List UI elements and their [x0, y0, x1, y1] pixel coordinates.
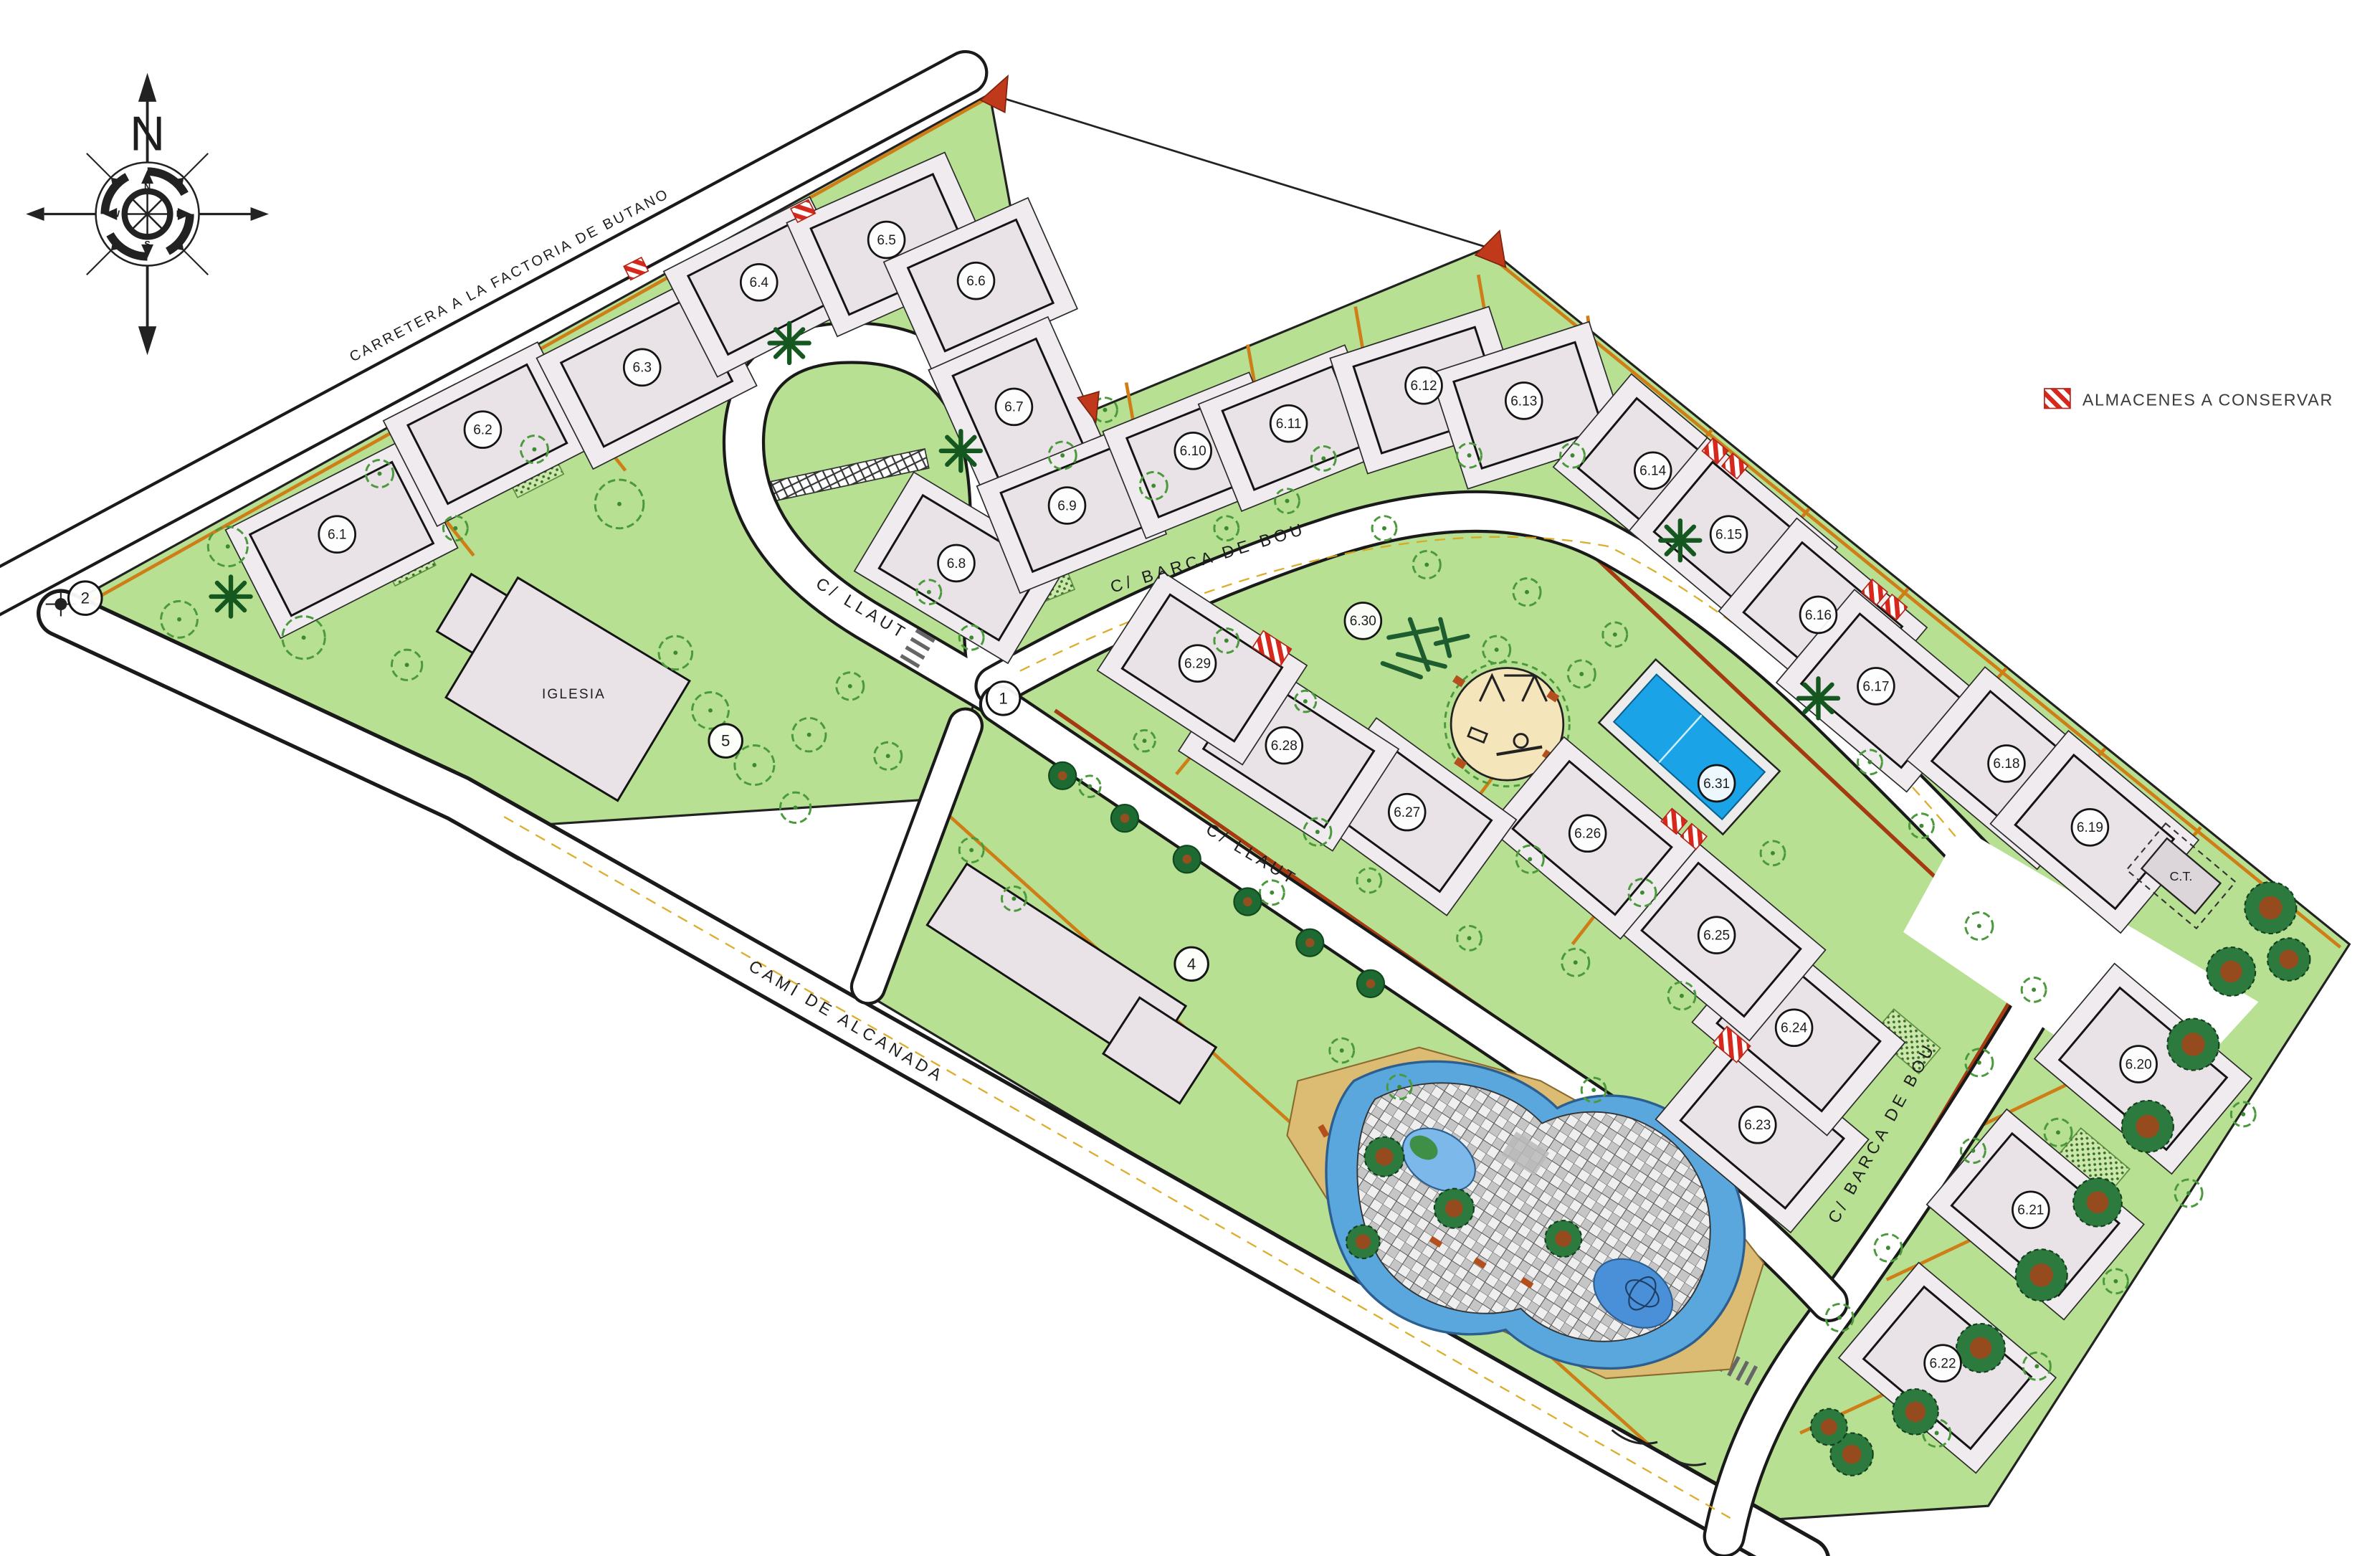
plot-label-6.12: 6.12 [1406, 367, 1442, 404]
svg-text:5: 5 [721, 732, 730, 750]
svg-text:E: E [176, 209, 182, 219]
plot-label-6.3: 6.3 [624, 349, 660, 386]
plot-label-6.13: 6.13 [1505, 383, 1542, 419]
svg-text:6.14: 6.14 [1639, 464, 1666, 479]
svg-text:6.18: 6.18 [1993, 756, 2019, 772]
boundary-tree-icon [1893, 1389, 1938, 1435]
plot-label-6.14: 6.14 [1634, 452, 1671, 489]
svg-text:1: 1 [999, 689, 1007, 707]
boundary-tree-icon [1956, 1324, 2005, 1372]
zone-label-2: 2 [68, 582, 102, 615]
street-tree-icon [1357, 970, 1384, 997]
compass-n-label: N [130, 108, 165, 161]
site-plan: IGLESIA C.T. CARRETERA A LA FACTORIA DE … [0, 0, 2380, 1556]
svg-text:6.22: 6.22 [1930, 1356, 1956, 1371]
plot-label-6.10: 6.10 [1175, 432, 1212, 469]
svg-text:6.2: 6.2 [473, 422, 492, 437]
iglesia-label: IGLESIA [542, 687, 606, 702]
svg-text:6.20: 6.20 [2126, 1057, 2152, 1072]
svg-text:N: N [144, 182, 151, 192]
boundary-tree-icon [1545, 1220, 1581, 1257]
palm-tree-icon [1799, 678, 1838, 718]
plot-label-6.7: 6.7 [996, 389, 1032, 425]
ct-label: C.T. [2169, 869, 2192, 883]
boundary-tree-icon [1346, 1225, 1380, 1258]
svg-text:6.13: 6.13 [1510, 394, 1537, 409]
svg-text:6.31: 6.31 [1703, 777, 1730, 792]
svg-text:6.29: 6.29 [1184, 657, 1211, 672]
svg-text:6.11: 6.11 [1276, 417, 1302, 432]
svg-text:6.26: 6.26 [1574, 827, 1601, 842]
plot-label-6.25: 6.25 [1698, 917, 1735, 954]
svg-text:2: 2 [81, 589, 90, 607]
boundary-tree-icon [2016, 1249, 2067, 1301]
plot-label-6.21: 6.21 [2012, 1192, 2049, 1228]
svg-text:6.4: 6.4 [750, 275, 769, 290]
svg-text:6.21: 6.21 [2017, 1203, 2044, 1218]
street-tree-icon [1049, 762, 1076, 789]
boundary-tree-icon [2122, 1101, 2174, 1152]
svg-text:6.15: 6.15 [1715, 528, 1742, 543]
plot-label-6.11: 6.11 [1270, 405, 1307, 442]
zone-label-5: 5 [709, 724, 743, 758]
svg-text:6.12: 6.12 [1410, 379, 1437, 394]
plot-label-6.31: 6.31 [1698, 765, 1735, 802]
plot-label-6.4: 6.4 [741, 264, 777, 300]
boundary-tree-icon [2245, 882, 2296, 934]
svg-text:6.6: 6.6 [966, 274, 985, 289]
svg-text:6.28: 6.28 [1271, 739, 1298, 754]
plot-label-6.19: 6.19 [2072, 809, 2108, 845]
legend-almacenes-label: ALMACENES A CONSERVAR [2082, 390, 2333, 409]
svg-text:6.10: 6.10 [1180, 444, 1206, 459]
plot-label-6.16: 6.16 [1800, 597, 1837, 633]
plot-label-6.27: 6.27 [1389, 794, 1425, 830]
svg-text:6.25: 6.25 [1703, 928, 1730, 943]
boundary-tree-icon [1434, 1189, 1474, 1228]
boundary-tree-icon [2207, 947, 2255, 996]
plot-label-6.17: 6.17 [1858, 668, 1895, 705]
svg-text:6.7: 6.7 [1004, 400, 1023, 415]
svg-text:4: 4 [1187, 955, 1196, 973]
zone-label-1: 1 [986, 682, 1020, 716]
plot-label-6.30: 6.30 [1345, 602, 1381, 639]
plot-label-6.24: 6.24 [1776, 1010, 1812, 1046]
svg-text:6.17: 6.17 [1862, 679, 1889, 694]
palm-tree-icon [941, 431, 981, 470]
palm-tree-icon [211, 577, 250, 616]
plot-label-6.26: 6.26 [1569, 815, 1606, 852]
svg-text:6.24: 6.24 [1781, 1021, 1807, 1036]
palm-tree-icon [770, 323, 809, 363]
palm-tree-icon [1660, 521, 1700, 560]
plot-label-6.6: 6.6 [958, 262, 994, 299]
svg-text:6.8: 6.8 [947, 556, 966, 571]
street-tree-icon [1111, 805, 1138, 832]
zone-label-4: 4 [1175, 947, 1209, 981]
legend-swatch-almacenes [2045, 389, 2070, 409]
svg-text:6.9: 6.9 [1057, 498, 1076, 513]
boundary-tree-icon [2267, 938, 2310, 980]
plot-label-6.2: 6.2 [465, 412, 501, 448]
svg-text:6.30: 6.30 [1350, 614, 1376, 629]
plot-label-6.28: 6.28 [1266, 727, 1303, 764]
plot-label-6.15: 6.15 [1710, 516, 1747, 553]
plot-label-6.8: 6.8 [938, 545, 975, 582]
svg-text:6.19: 6.19 [2077, 820, 2103, 835]
street-tree-icon [1296, 929, 1323, 957]
plot-label-6.1: 6.1 [319, 516, 356, 553]
boundary-tree-icon [1811, 1409, 1847, 1446]
plot-label-6.23: 6.23 [1739, 1106, 1776, 1143]
street-tree-icon [1234, 888, 1261, 915]
street-tree-icon [1174, 845, 1201, 873]
svg-text:S: S [144, 239, 150, 250]
svg-text:6.1: 6.1 [328, 528, 346, 543]
legend: ALMACENES A CONSERVAR [2045, 389, 2333, 409]
svg-text:W: W [111, 209, 120, 219]
svg-text:6.5: 6.5 [877, 233, 895, 248]
svg-text:6.27: 6.27 [1394, 805, 1420, 820]
svg-text:6.16: 6.16 [1805, 608, 1832, 623]
plot-label-6.5: 6.5 [868, 222, 905, 258]
boundary-tree-icon [2167, 1019, 2219, 1071]
svg-text:6.23: 6.23 [1744, 1118, 1771, 1133]
plot-label-6.18: 6.18 [1989, 745, 2025, 782]
svg-text:6.3: 6.3 [632, 361, 651, 376]
plot-label-6.29: 6.29 [1179, 645, 1216, 682]
boundary-tree-icon [1364, 1137, 1404, 1177]
plot-label-6.22: 6.22 [1925, 1345, 1961, 1382]
plot-label-6.20: 6.20 [2120, 1046, 2157, 1083]
plot-label-6.9: 6.9 [1049, 488, 1085, 524]
boundary-tree-icon [2073, 1178, 2122, 1227]
